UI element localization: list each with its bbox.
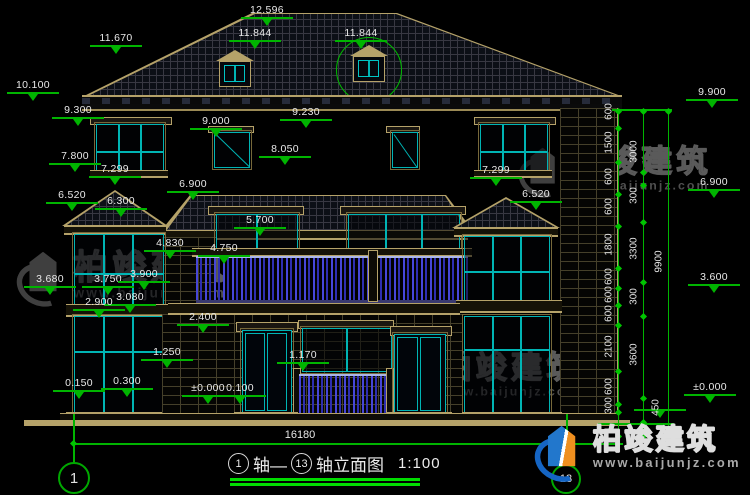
level-marker: 9.300 <box>52 105 104 131</box>
level-marker: 7.299 <box>470 165 522 191</box>
level-marker: 1.250 <box>141 347 193 373</box>
level-marker: 7.299 <box>89 164 141 190</box>
level-marker: 4.750 <box>198 243 250 269</box>
level-marker: ±0.000 <box>684 382 736 408</box>
drawing-title: 1轴—13轴立面图1:100 <box>228 451 441 476</box>
title-text-1: 轴— <box>253 451 287 476</box>
dim-tick <box>640 395 647 402</box>
level-marker: 3.680 <box>24 274 76 300</box>
axis-start-bubble: 1 <box>228 453 249 474</box>
vertical-dim-label: 300 <box>629 277 640 317</box>
vertical-dim-label: 2100 <box>604 327 615 367</box>
vertical-dim-label: 3000 <box>629 132 640 172</box>
level-marker: 6.900 <box>688 177 740 203</box>
level-marker: 6.900 <box>167 179 219 205</box>
vertical-dim-label: 600 <box>604 187 615 227</box>
level-marker: 9.900 <box>686 87 738 113</box>
entry-door-right <box>394 334 446 416</box>
level-marker: 6.520 <box>46 190 98 216</box>
axis-bubble-1: 1 <box>58 462 90 494</box>
vertical-dim-label: 300 <box>604 386 615 426</box>
dim-tick <box>70 440 77 447</box>
level-marker: 9.230 <box>280 107 332 133</box>
level-marker: 4.830 <box>144 238 196 264</box>
dim-line-vertical-2 <box>643 109 644 437</box>
title-underline-1 <box>230 478 420 481</box>
level-marker: 9.000 <box>190 116 242 142</box>
level-marker: 0.150 <box>53 378 105 404</box>
vertical-dim-label: 9900 <box>654 242 665 282</box>
level-marker: 2.900 <box>73 297 125 323</box>
vertical-dim-label: 3600 <box>629 335 640 375</box>
dim-line-vertical-3 <box>668 109 669 437</box>
baijun-logo-icon <box>534 424 586 483</box>
roof-dormer-left <box>216 50 254 87</box>
balcony-post <box>368 250 378 302</box>
level-marker: 11.844 <box>335 28 387 54</box>
vertical-dim-label: 450 <box>651 388 662 428</box>
level-marker: 0.300 <box>101 376 153 402</box>
bay-window-1f-right <box>464 316 550 414</box>
vertical-dim-label: 300 <box>629 176 640 216</box>
window-attic-right <box>392 132 418 168</box>
level-marker: 11.844 <box>229 28 281 54</box>
bay-band <box>456 300 562 313</box>
axis-end-bubble: 13 <box>291 453 312 474</box>
dormer-window <box>224 65 245 82</box>
title-text-2: 轴立面图 <box>316 451 384 476</box>
level-marker: 1.170 <box>277 350 329 376</box>
cad-elevation-drawing: 柏竣建筑 www.baijunjz.com 柏竣建筑 www.baijunjz.… <box>0 0 750 495</box>
title-underline-2 <box>230 483 420 486</box>
level-marker: 3.600 <box>688 272 740 298</box>
level-marker: 10.100 <box>7 80 59 106</box>
level-marker: 5.700 <box>234 215 286 241</box>
dim-tick <box>640 279 647 286</box>
dim-tick <box>640 313 647 320</box>
drawing-scale: 1:100 <box>398 455 441 472</box>
level-marker: 6.520 <box>510 189 562 215</box>
bay-window-2f-right <box>464 236 550 302</box>
logo-brand: 柏竣建筑 <box>593 424 741 455</box>
level-marker: 6.300 <box>95 196 147 222</box>
main-eave <box>82 95 622 111</box>
level-marker: 0.100 <box>214 383 266 409</box>
dim-tick <box>640 219 647 226</box>
overall-width-dim: 16180 <box>250 429 350 441</box>
vertical-dim-label: 3300 <box>629 229 640 269</box>
logo-url: www.baijunjz.com <box>593 455 741 470</box>
watermark-logo-colored: 柏竣建筑 www.baijunjz.com <box>534 424 741 483</box>
level-marker: 11.670 <box>90 33 142 59</box>
level-marker: 8.050 <box>259 144 311 170</box>
level-marker: 2.400 <box>177 312 229 338</box>
